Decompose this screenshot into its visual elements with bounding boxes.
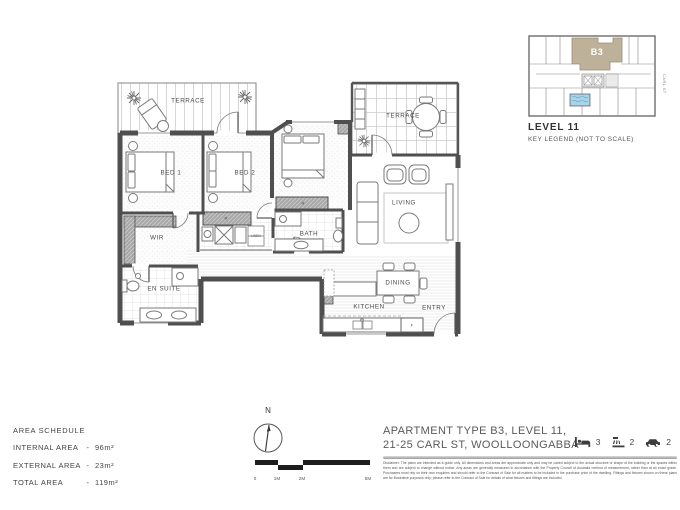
room-label-bath: BATH xyxy=(300,231,318,238)
room-label-dining: DINING xyxy=(385,280,410,287)
title-divider-bar xyxy=(383,456,677,459)
apartment-floor-plan: TERRACE TERRACE BED 1 BED 2 WIR EN SUITE… xyxy=(76,70,466,350)
key-legend: B3 LEVEL 11 KEY LEGEND (NOT TO SCALE) xyxy=(526,22,676,157)
bath-count: 2 xyxy=(630,437,635,447)
area-separator: - xyxy=(81,478,95,487)
area-value: 96m² xyxy=(95,443,173,452)
key-legend-title: LEVEL 11 xyxy=(528,122,580,133)
room-label-terrace-east: TERRACE xyxy=(386,113,420,120)
area-row-external: EXTERNAL AREA - 23m² xyxy=(13,461,173,470)
room-label-ensuite: EN SUITE xyxy=(147,286,180,293)
robe-label-bed3: R xyxy=(301,201,304,206)
scale-tick-1m: 1M xyxy=(274,476,280,481)
room-label-wir: WIR xyxy=(150,235,164,242)
area-label: INTERNAL AREA xyxy=(13,443,81,452)
north-label: N xyxy=(265,406,271,415)
disclaimer-text: Disclaimer: The plans are intended as a … xyxy=(383,461,677,481)
area-value: 119m² xyxy=(95,478,173,487)
room-label-bed2: BED 2 xyxy=(235,170,256,177)
area-schedule-title: AREA SCHEDULE xyxy=(13,426,173,435)
area-label: TOTAL AREA xyxy=(13,478,81,487)
area-row-total: TOTAL AREA - 119m² xyxy=(13,478,173,487)
car-count: 2 xyxy=(666,437,671,447)
room-label-entry: ENTRY xyxy=(422,305,446,312)
bed-count: 3 xyxy=(596,437,601,447)
street-label: CARL ST xyxy=(662,74,667,94)
key-unit-b3-label: B3 xyxy=(591,47,604,57)
room-label-linen: LINEN xyxy=(251,234,260,238)
scale-bar-graphic xyxy=(250,458,380,472)
bed3-furniture xyxy=(282,125,324,187)
area-schedule: AREA SCHEDULE INTERNAL AREA - 96m² EXTER… xyxy=(13,426,173,496)
fridge-label: F xyxy=(411,323,414,328)
bath-icon xyxy=(612,436,625,448)
area-label: EXTERNAL AREA xyxy=(13,461,81,470)
room-label-terrace-west: TERRACE xyxy=(171,98,205,105)
scale-tick-0: 0 xyxy=(254,476,257,481)
room-label-bed1: BED 1 xyxy=(161,170,182,177)
key-legend-subtitle: KEY LEGEND (NOT TO SCALE) xyxy=(528,136,634,143)
scale-tick-2m: 2M xyxy=(299,476,305,481)
feature-icons: 3 2 2 xyxy=(575,436,677,448)
room-label-kitchen: KITCHEN xyxy=(353,304,384,311)
robe-label-bed2: R xyxy=(224,216,227,221)
area-value: 23m² xyxy=(95,461,173,470)
key-plan-pool xyxy=(570,94,590,106)
area-row-internal: INTERNAL AREA - 96m² xyxy=(13,443,173,452)
scale-bar: 0 1M 2M 5M xyxy=(250,458,380,488)
title-block: APARTMENT TYPE B3, LEVEL 11, 21-25 CARL … xyxy=(383,424,677,481)
car-icon xyxy=(645,436,661,448)
area-separator: - xyxy=(81,461,95,470)
room-label-living: LIVING xyxy=(392,200,416,207)
key-plan-drawing xyxy=(526,30,661,125)
area-separator: - xyxy=(81,443,95,452)
floor-plan-page: TERRACE TERRACE BED 1 BED 2 WIR EN SUITE… xyxy=(0,0,680,510)
key-plan-core xyxy=(582,74,618,87)
scale-tick-5m: 5M xyxy=(365,476,371,481)
bed-icon xyxy=(575,436,591,448)
